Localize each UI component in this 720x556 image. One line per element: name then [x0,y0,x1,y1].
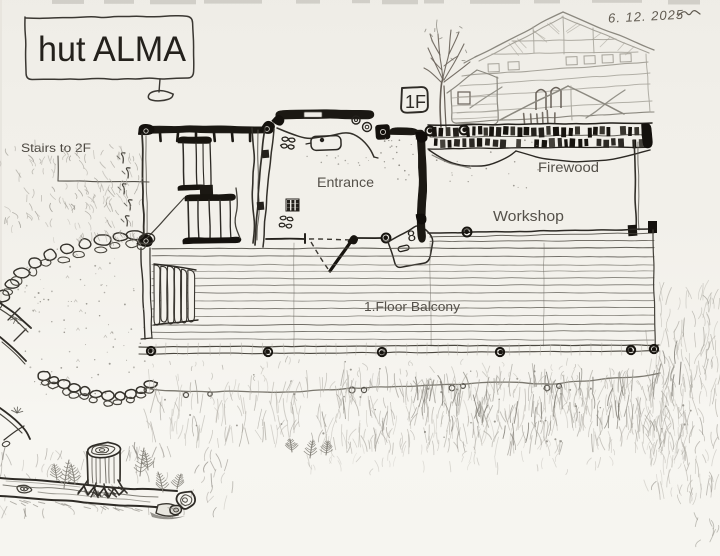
svg-text:Entrance: Entrance [317,174,374,190]
svg-text:Firewood: Firewood [538,159,599,175]
svg-text:1.Floor Balcony: 1.Floor Balcony [364,299,461,314]
svg-text:1F: 1F [405,92,426,112]
svg-text:Workshop: Workshop [493,208,564,225]
svg-text:hut ALMA: hut ALMA [38,30,187,69]
